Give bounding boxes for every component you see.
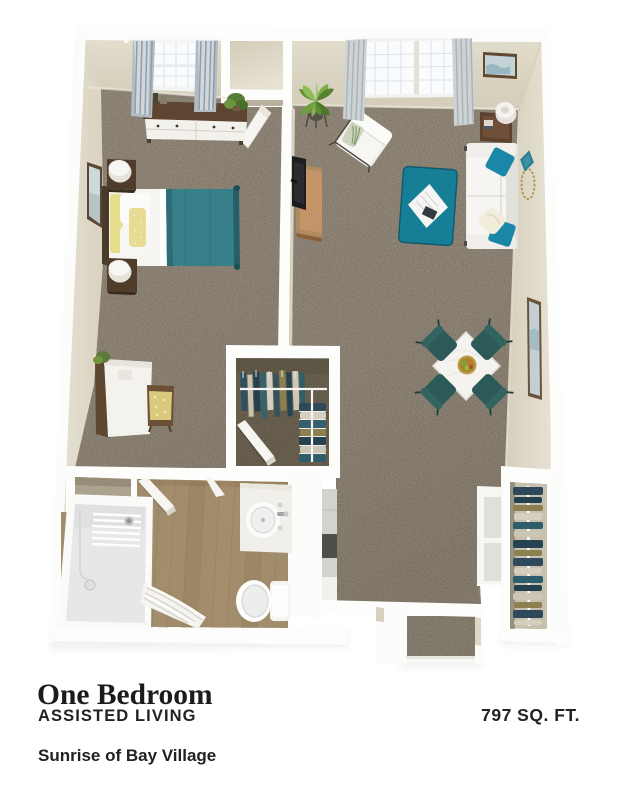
svg-text:Sunrise of Bay Village: Sunrise of Bay Village — [38, 746, 216, 765]
svg-text:ASSISTED LIVING: ASSISTED LIVING — [38, 707, 197, 725]
svg-text:797 SQ. FT.: 797 SQ. FT. — [481, 705, 580, 725]
